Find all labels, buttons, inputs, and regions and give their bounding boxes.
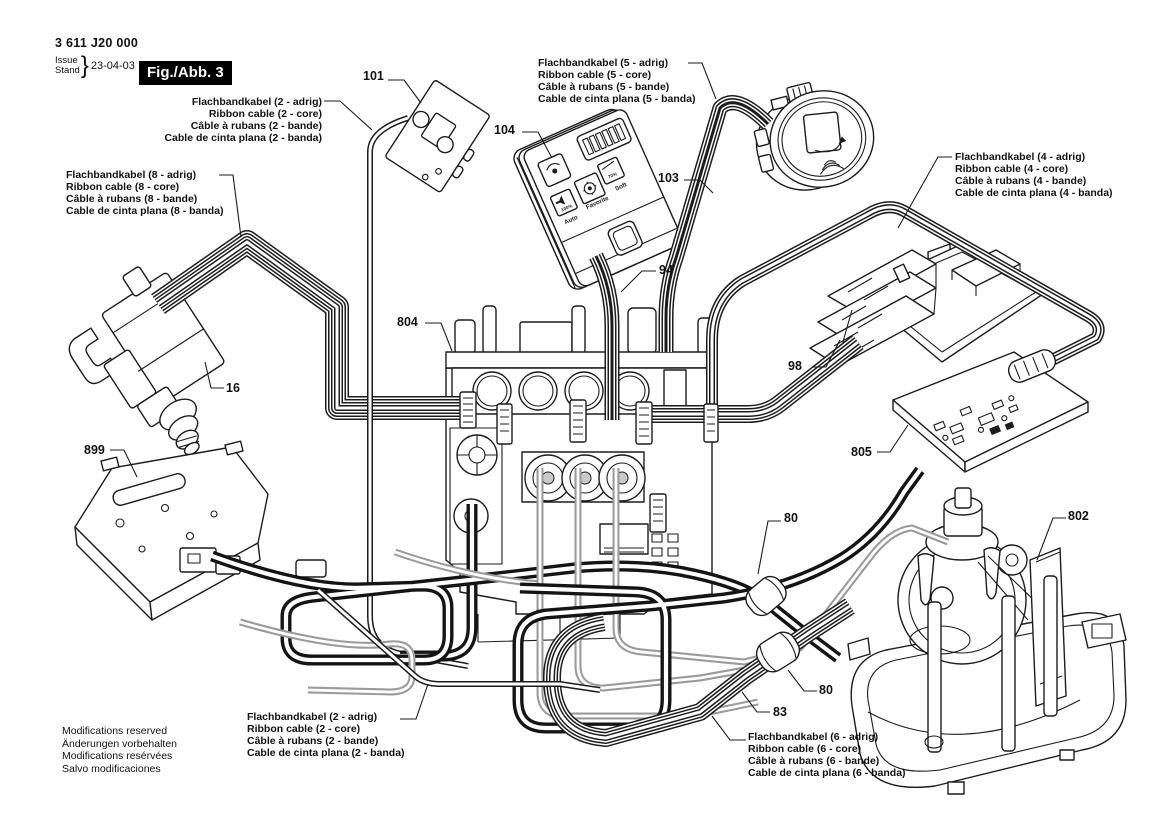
title-block: 3 611 J20 000 Issue Stand } 23-04-03 bbox=[55, 36, 138, 80]
cable-label-2core-bottom: Flachbandkabel (2 - adrig) Ribbon cable … bbox=[247, 711, 405, 759]
part-callout-103: 103 bbox=[658, 171, 679, 185]
speaker-part bbox=[744, 70, 884, 201]
stand-label: Stand bbox=[55, 66, 80, 76]
mounting-plate-899 bbox=[75, 441, 326, 620]
part-callout-104: 104 bbox=[494, 123, 515, 137]
parts-diagram-page: 100% 70% Auto Favorite Soft bbox=[0, 0, 1169, 826]
cable-label-8core: Flachbandkabel (8 - adrig) Ribbon cable … bbox=[66, 169, 224, 217]
pcb-805 bbox=[893, 352, 1088, 472]
part-callout-16: 16 bbox=[226, 381, 240, 395]
brace-glyph: } bbox=[81, 52, 89, 80]
cable-label-5core: Flachbandkabel (5 - adrig) Ribbon cable … bbox=[538, 57, 696, 105]
part-callout-804: 804 bbox=[397, 315, 418, 329]
document-part-number: 3 611 J20 000 bbox=[55, 36, 138, 50]
switch-plate-101 bbox=[385, 80, 496, 197]
part-callout-83: 83 bbox=[773, 705, 787, 719]
part-callout-80a: 80 bbox=[784, 511, 798, 525]
part-callout-802: 802 bbox=[1068, 509, 1089, 523]
cable-label-4core: Flachbandkabel (4 - adrig) Ribbon cable … bbox=[955, 151, 1113, 199]
cable-label-6core: Flachbandkabel (6 - adrig) Ribbon cable … bbox=[748, 731, 906, 779]
modifications-note: Modifications reserved Änderungen vorbeh… bbox=[62, 725, 177, 775]
part-callout-101: 101 bbox=[363, 69, 384, 83]
cable-label-2core-top: Flachbandkabel (2 - adrig) Ribbon cable … bbox=[155, 96, 322, 144]
issue-date: 23-04-03 bbox=[91, 60, 135, 72]
part-callout-805: 805 bbox=[851, 445, 872, 459]
part-callout-94: 94 bbox=[659, 263, 673, 277]
part-callout-899: 899 bbox=[84, 443, 105, 457]
figure-badge: Fig./Abb. 3 bbox=[139, 61, 232, 85]
part-callout-80b: 80 bbox=[819, 683, 833, 697]
part-callout-98: 98 bbox=[788, 359, 802, 373]
